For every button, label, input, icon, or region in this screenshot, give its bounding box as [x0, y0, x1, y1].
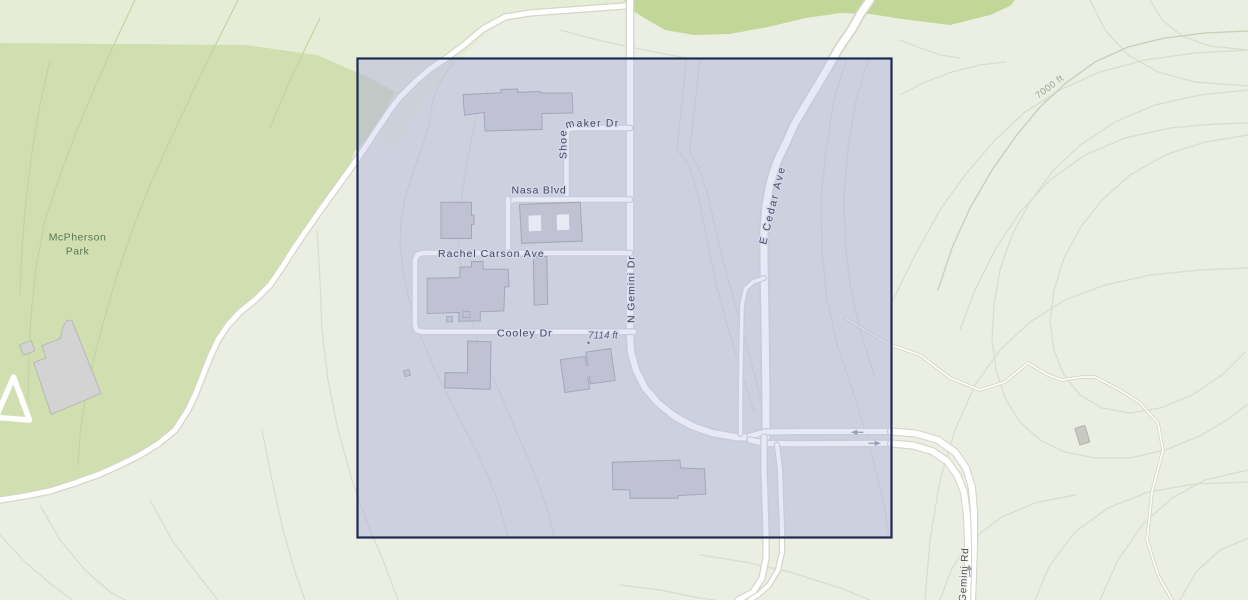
svg-text:7114 ft: 7114 ft [588, 331, 619, 342]
svg-text:Park: Park [66, 246, 90, 258]
svg-text:Nasa Blvd: Nasa Blvd [512, 185, 567, 197]
svg-text:Cooley Dr: Cooley Dr [497, 328, 553, 340]
svg-text:McPherson: McPherson [49, 232, 107, 244]
svg-text:Rachel Carson Ave: Rachel Carson Ave [438, 248, 545, 260]
svg-text:N Gemini Dr: N Gemini Dr [626, 255, 638, 323]
